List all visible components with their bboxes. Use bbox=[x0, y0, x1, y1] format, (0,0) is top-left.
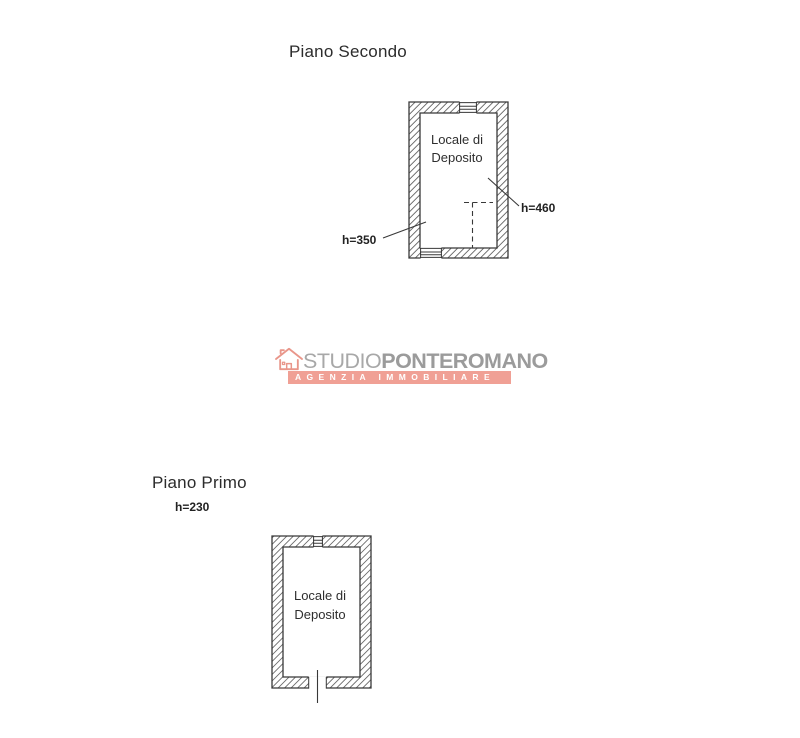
house-icon bbox=[274, 346, 304, 372]
room-label-line2: Deposito bbox=[282, 605, 358, 624]
room-label-line2: Deposito bbox=[419, 149, 495, 167]
scanned-floor-plan-page: Piano Secondo Locale di Deposito h=350 h… bbox=[0, 0, 800, 738]
dimension-h460: h=460 bbox=[521, 201, 555, 215]
window-bottom bbox=[420, 247, 442, 259]
room-label-line1: Locale di bbox=[419, 131, 495, 149]
room-label-primo: Locale di Deposito bbox=[282, 586, 358, 624]
brand-prefix: STUDIO bbox=[303, 349, 381, 373]
watermark-tagline-bar: AGENZIA IMMOBILIARE bbox=[288, 371, 511, 384]
floor-title-primo: Piano Primo bbox=[152, 473, 247, 493]
dimension-h350: h=350 bbox=[342, 233, 376, 247]
floor-title-secondo: Piano Secondo bbox=[289, 42, 407, 62]
walls bbox=[409, 102, 508, 258]
window-top bbox=[459, 101, 477, 114]
brand-suffix: PONTEROMANO bbox=[381, 349, 548, 373]
window-top bbox=[313, 535, 323, 548]
dashed-height-line bbox=[464, 203, 493, 249]
door-bottom bbox=[309, 670, 327, 703]
dimension-h230: h=230 bbox=[175, 500, 209, 514]
piano-secondo-plan bbox=[383, 101, 519, 259]
room-label-line1: Locale di bbox=[282, 586, 358, 605]
room-label-secondo: Locale di Deposito bbox=[419, 131, 495, 167]
